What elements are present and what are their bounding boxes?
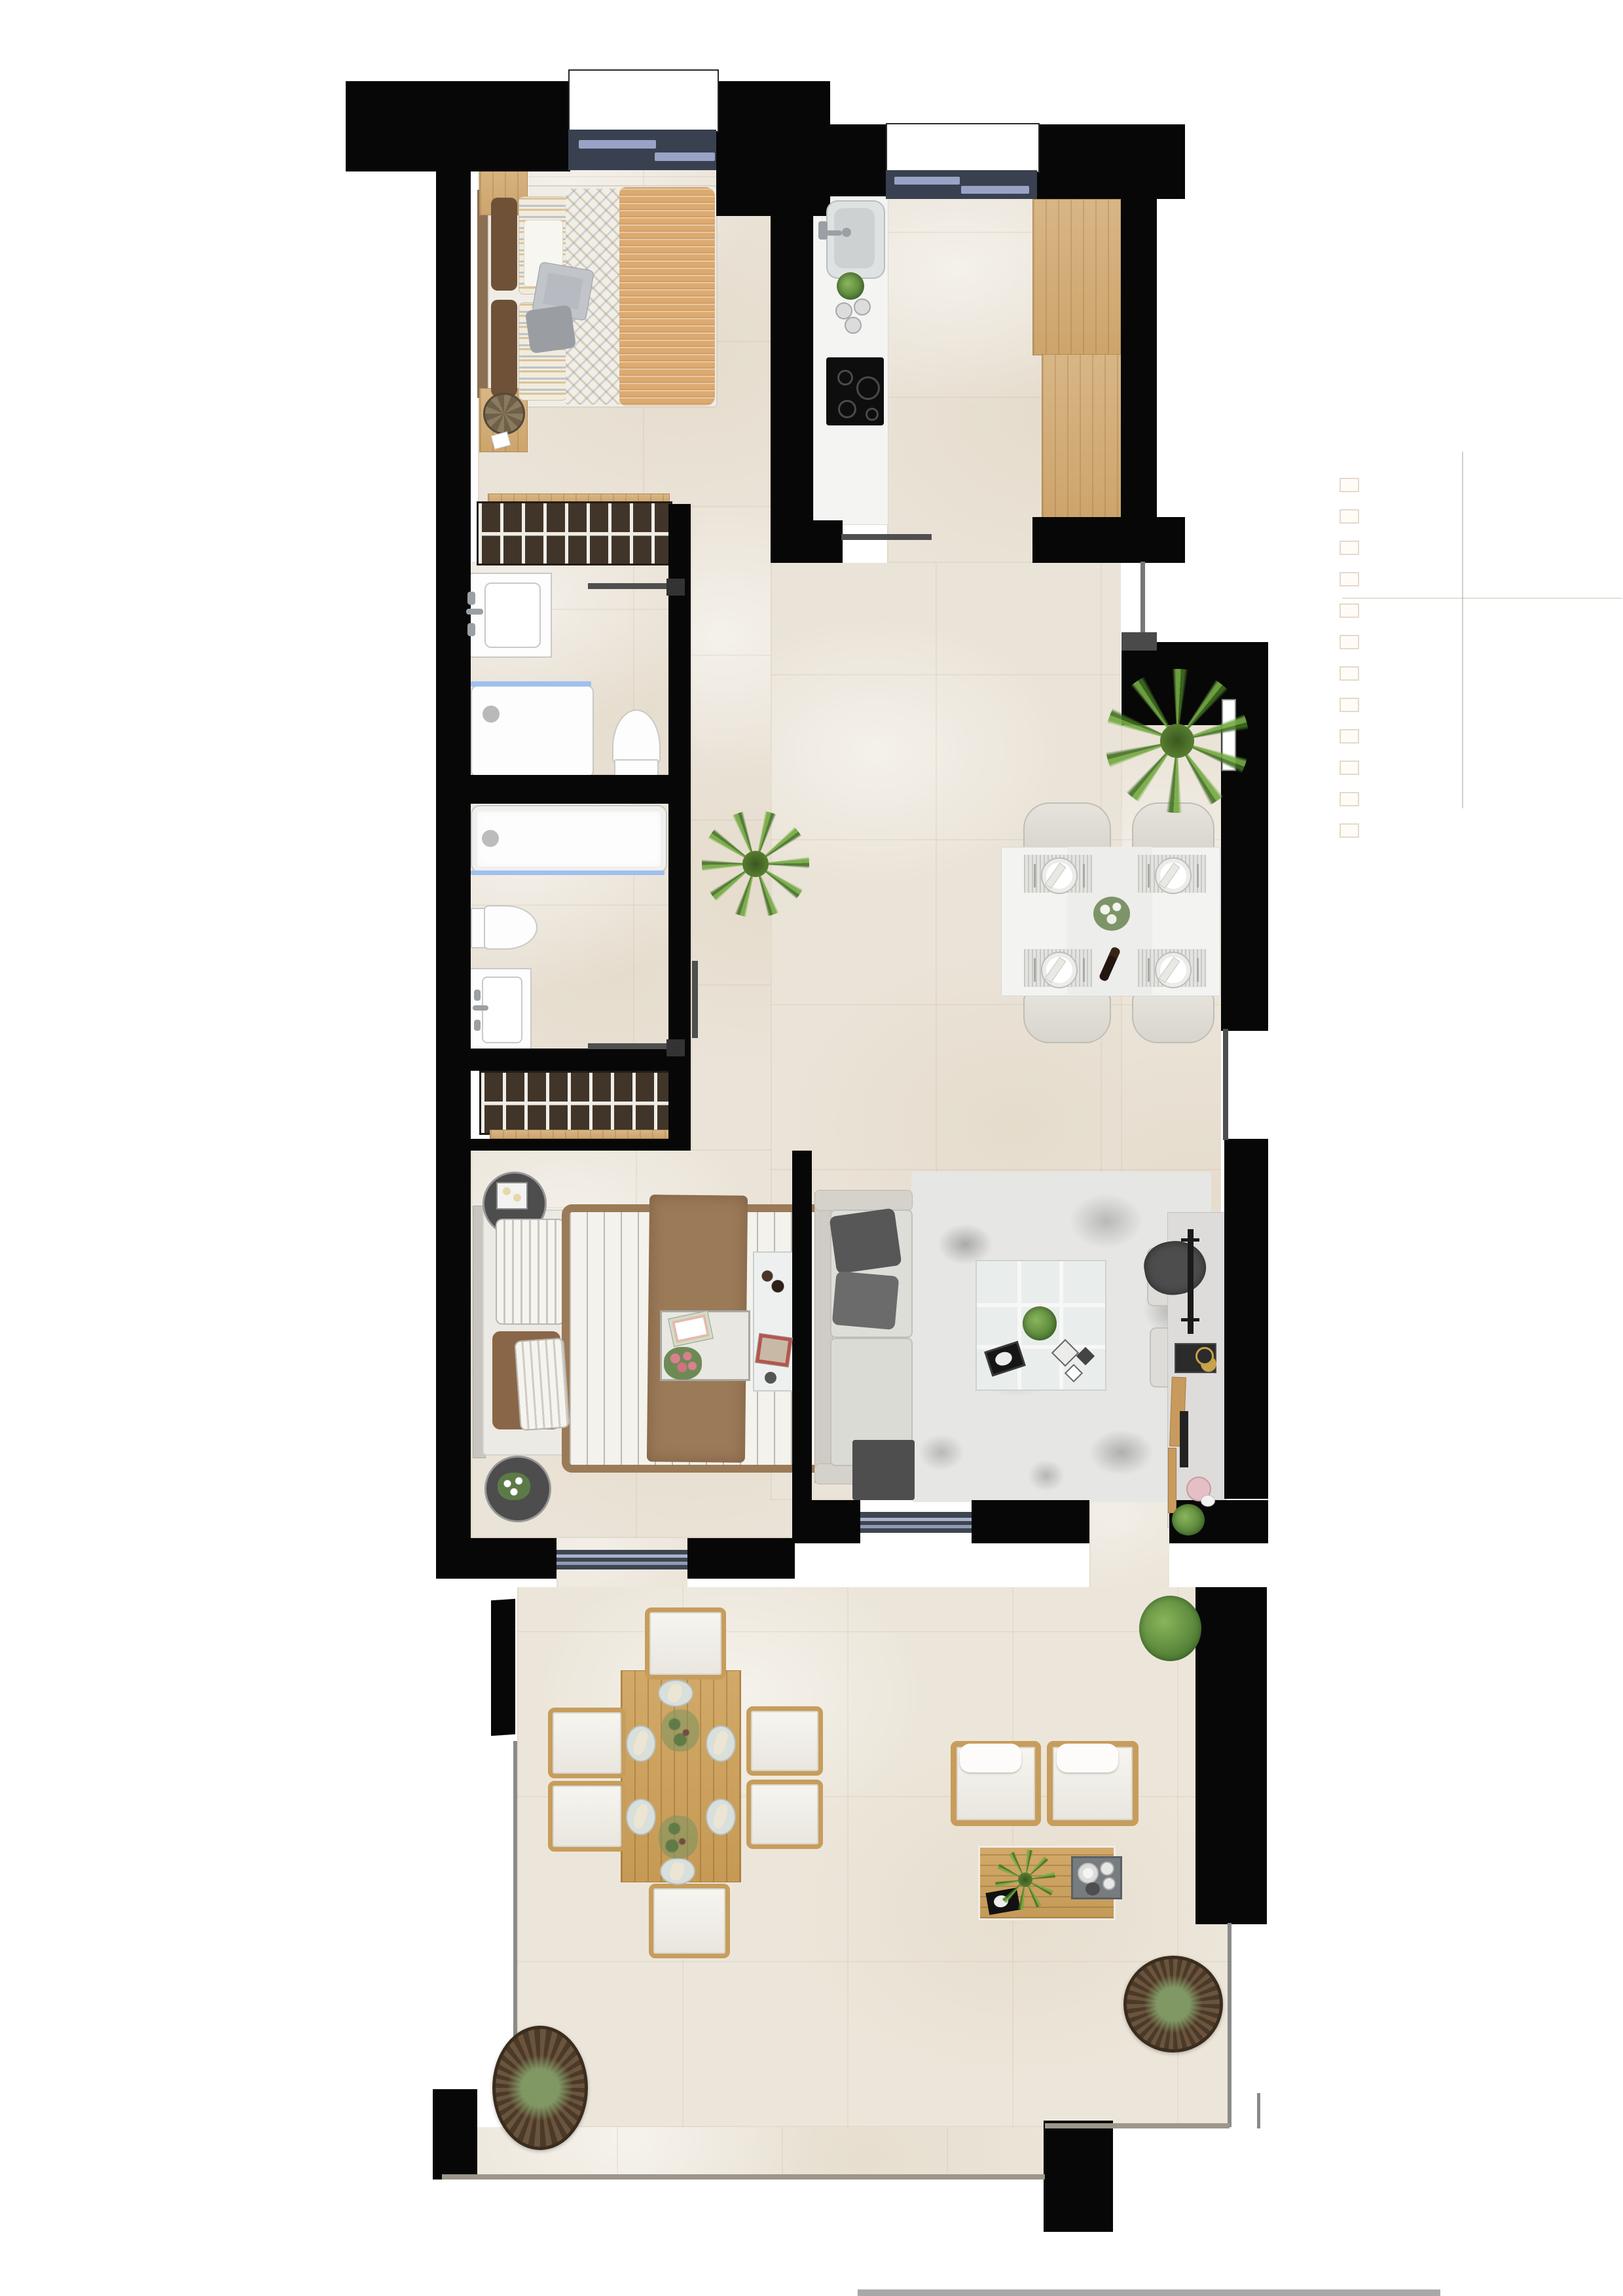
console-cup bbox=[765, 1372, 776, 1384]
door-dining-lintel bbox=[1122, 632, 1157, 651]
counter-jar-3 bbox=[845, 317, 862, 334]
door-terrace-bed2-glass bbox=[556, 1550, 687, 1570]
terrace-plate-bottom bbox=[660, 1857, 695, 1885]
dining-chair-1 bbox=[1023, 802, 1111, 853]
wall-kitchen-right bbox=[1121, 199, 1157, 528]
terrace-chair-left-1 bbox=[548, 1708, 626, 1778]
console-decor-dark bbox=[759, 1266, 786, 1300]
wall-counter-stub bbox=[771, 520, 843, 563]
wall-bed2-terrace-b bbox=[687, 1538, 795, 1579]
floor-door-bridge-living bbox=[1089, 1499, 1169, 1590]
tray-cup-2 bbox=[1103, 1877, 1116, 1890]
woven-fan-decor bbox=[483, 393, 525, 435]
kitchen-sink-basin bbox=[834, 208, 875, 268]
sofa-pillow-b bbox=[832, 1271, 900, 1330]
wall-bath2-right bbox=[668, 804, 691, 1071]
bed1-throw-gray bbox=[525, 304, 577, 353]
terrace-centerpiece-2 bbox=[659, 1816, 698, 1859]
vanity-2-handle-a bbox=[474, 990, 481, 1001]
dining-chair-4 bbox=[1132, 992, 1214, 1043]
nightstand-2a-tray bbox=[496, 1182, 528, 1210]
hob-burner-2 bbox=[837, 370, 853, 386]
shower-drain bbox=[483, 706, 500, 723]
bed2-pillow-striped-a bbox=[496, 1219, 565, 1325]
vanity-1-handle-b bbox=[467, 623, 475, 636]
coffee-table-plant bbox=[1023, 1306, 1057, 1340]
window-kitchen bbox=[886, 123, 1040, 173]
terrace-plate-left-1 bbox=[626, 1725, 656, 1762]
terrace-right-thin-wall bbox=[1228, 1923, 1231, 2127]
terrace-chair-right-2 bbox=[746, 1780, 823, 1849]
wood-stick bbox=[1168, 1448, 1176, 1513]
wall-bath-divider bbox=[436, 775, 691, 804]
tv-foot-a bbox=[1181, 1238, 1199, 1242]
tv-foot-b bbox=[1181, 1318, 1199, 1321]
vanity-1-handle-a bbox=[467, 592, 475, 605]
wall-terrace-right bbox=[1195, 1587, 1267, 1924]
ghost-window-segment bbox=[1340, 698, 1359, 712]
terrace-chair-top bbox=[645, 1607, 726, 1679]
terrace-plate-top bbox=[658, 1679, 693, 1707]
door-bathroom2-frame bbox=[666, 1039, 685, 1056]
bed1-blanket-tan bbox=[619, 187, 715, 406]
window-bedroom1-pane-right bbox=[655, 152, 715, 161]
vanity-2-faucet bbox=[473, 1005, 488, 1011]
sofa-ottoman bbox=[852, 1440, 915, 1500]
wall-bath1-right bbox=[668, 504, 691, 792]
bed2-pillow-striped-b bbox=[514, 1338, 570, 1431]
window-bedroom1 bbox=[568, 69, 719, 132]
terrace-chair-right-1 bbox=[746, 1706, 823, 1776]
terrace-chair-bottom bbox=[649, 1884, 730, 1958]
ghost-window-segment bbox=[1340, 823, 1359, 838]
wall-bed2-terrace-a bbox=[436, 1538, 556, 1579]
wall-left bbox=[436, 111, 471, 1538]
door-kitchen-leaf bbox=[841, 534, 932, 540]
wall-living-terrace-a bbox=[795, 1500, 860, 1543]
hob-burner-3 bbox=[838, 400, 856, 418]
door-terrace-living-glass bbox=[860, 1512, 972, 1533]
wall-kitchen-bottom bbox=[1032, 517, 1185, 563]
bed1-pillow-brown-b bbox=[491, 300, 517, 397]
terrace-chair-left-2 bbox=[548, 1781, 626, 1852]
ghost-neighbor-line-h bbox=[1342, 598, 1622, 599]
ghost-window-segment bbox=[1340, 792, 1359, 806]
window-bedroom1-pane-left bbox=[579, 140, 656, 149]
kitchen-cabinet-upper bbox=[1032, 199, 1122, 355]
vanity-2-sink bbox=[482, 977, 522, 1043]
ghost-window-segment bbox=[1340, 729, 1359, 744]
door-bathroom1-leaf bbox=[588, 583, 670, 589]
terrace-right-stub bbox=[1257, 2093, 1260, 2128]
wall-win2-left bbox=[813, 124, 887, 196]
kitchen-cabinet-lower bbox=[1042, 354, 1122, 518]
terrace-edge-right bbox=[1045, 2123, 1230, 2128]
ghost-window-segment bbox=[1340, 572, 1359, 586]
wall-living-terrace-b bbox=[972, 1500, 1089, 1543]
wall-bed1-kitchen bbox=[771, 115, 813, 527]
door-living-terrace-leaf bbox=[1223, 1029, 1228, 1140]
vanity-1-faucet bbox=[466, 609, 483, 615]
counter-jar-2 bbox=[854, 298, 871, 315]
tray-dish-dark bbox=[1085, 1882, 1100, 1895]
ghost-window-segment bbox=[1340, 666, 1359, 681]
nightstand-2a-candles bbox=[503, 1187, 511, 1195]
ghost-window-segment bbox=[1340, 603, 1359, 618]
bathtub-glass bbox=[471, 870, 665, 875]
terrace-plate-right-2 bbox=[706, 1799, 736, 1835]
terrace-centerpiece-1 bbox=[661, 1710, 699, 1751]
terrace-door-plant bbox=[1139, 1596, 1201, 1661]
tv-decor-cup bbox=[1201, 1495, 1215, 1507]
window-bedroom1-frame bbox=[568, 130, 716, 170]
wall-bed2-living bbox=[792, 1151, 812, 1538]
dining-chair-3 bbox=[1023, 992, 1111, 1043]
vanity-1-sink bbox=[484, 583, 541, 648]
hob-burner-4 bbox=[866, 408, 879, 421]
tray-flowers bbox=[664, 1347, 702, 1380]
wall-bath2-bottom bbox=[436, 1049, 691, 1071]
planter-right bbox=[1123, 1956, 1223, 2053]
wall-ward2-right bbox=[668, 1071, 691, 1139]
window-kitchen-pane-right bbox=[961, 186, 1029, 194]
page-bottom-strip bbox=[858, 2289, 1440, 2296]
planter-left bbox=[492, 2026, 588, 2150]
bathtub bbox=[471, 805, 667, 873]
ghost-neighbor-line-v bbox=[1462, 452, 1463, 808]
ghost-window-segment bbox=[1340, 478, 1359, 492]
ghost-window-segment bbox=[1340, 509, 1359, 524]
counter-plant bbox=[837, 272, 864, 300]
hob-burner-1 bbox=[856, 376, 880, 400]
column-terrace-right bbox=[1044, 2121, 1113, 2232]
faucet-base bbox=[842, 228, 851, 237]
sofa-pillow-a bbox=[829, 1208, 902, 1274]
tray-teapot bbox=[1078, 1863, 1099, 1884]
terrace-edge-bottom bbox=[442, 2174, 1045, 2179]
toilet-1-tank bbox=[614, 759, 659, 777]
tv-decor-plant bbox=[1172, 1504, 1205, 1535]
ghost-window-segment bbox=[1340, 635, 1359, 649]
tv-decor-black-bar bbox=[1180, 1411, 1188, 1467]
shower-tray bbox=[471, 685, 594, 778]
bed1-pillow-brown-a bbox=[491, 198, 517, 291]
shower-glass bbox=[471, 681, 591, 687]
vanity-2-handle-b bbox=[474, 1020, 481, 1031]
dining-centerpiece bbox=[1093, 897, 1130, 931]
wardrobe2-bottom-strip bbox=[490, 1130, 672, 1139]
console-books bbox=[755, 1333, 793, 1368]
column-terrace-left bbox=[433, 2089, 477, 2179]
door-corridor-leaf bbox=[692, 961, 698, 1038]
wardrobe-2 bbox=[479, 1071, 674, 1135]
door-bathroom2-leaf bbox=[588, 1043, 670, 1049]
wall-ward2-bottom bbox=[436, 1139, 691, 1151]
floor-plan bbox=[0, 0, 1623, 2296]
terrace-plate-right-1 bbox=[706, 1725, 736, 1762]
nightstand-2b-flowers bbox=[498, 1473, 530, 1500]
lounge-chair-2-pillow bbox=[1057, 1744, 1118, 1772]
window-kitchen-frame bbox=[886, 170, 1037, 199]
wall-living-right bbox=[1224, 1139, 1268, 1499]
window-kitchen-pane-left bbox=[894, 177, 960, 185]
ghost-window-segment bbox=[1340, 761, 1359, 775]
wardrobe-1 bbox=[477, 501, 672, 565]
lounge-chair-1-pillow bbox=[960, 1744, 1021, 1772]
door-bathroom1-frame bbox=[666, 579, 685, 596]
tray-cup-1 bbox=[1100, 1861, 1114, 1876]
ghost-window-segment bbox=[1340, 541, 1359, 555]
terrace-plate-left-2 bbox=[626, 1799, 656, 1835]
door-kitchen-dining-glass bbox=[1140, 562, 1145, 643]
bathtub-drain bbox=[482, 830, 499, 847]
wall-win2-right bbox=[1037, 124, 1185, 199]
faucet-spout bbox=[822, 230, 842, 236]
sofa-arm-top bbox=[814, 1190, 913, 1211]
tv-decor-gold-rings bbox=[1195, 1347, 1214, 1365]
wall-terrace-left bbox=[491, 1599, 515, 1736]
